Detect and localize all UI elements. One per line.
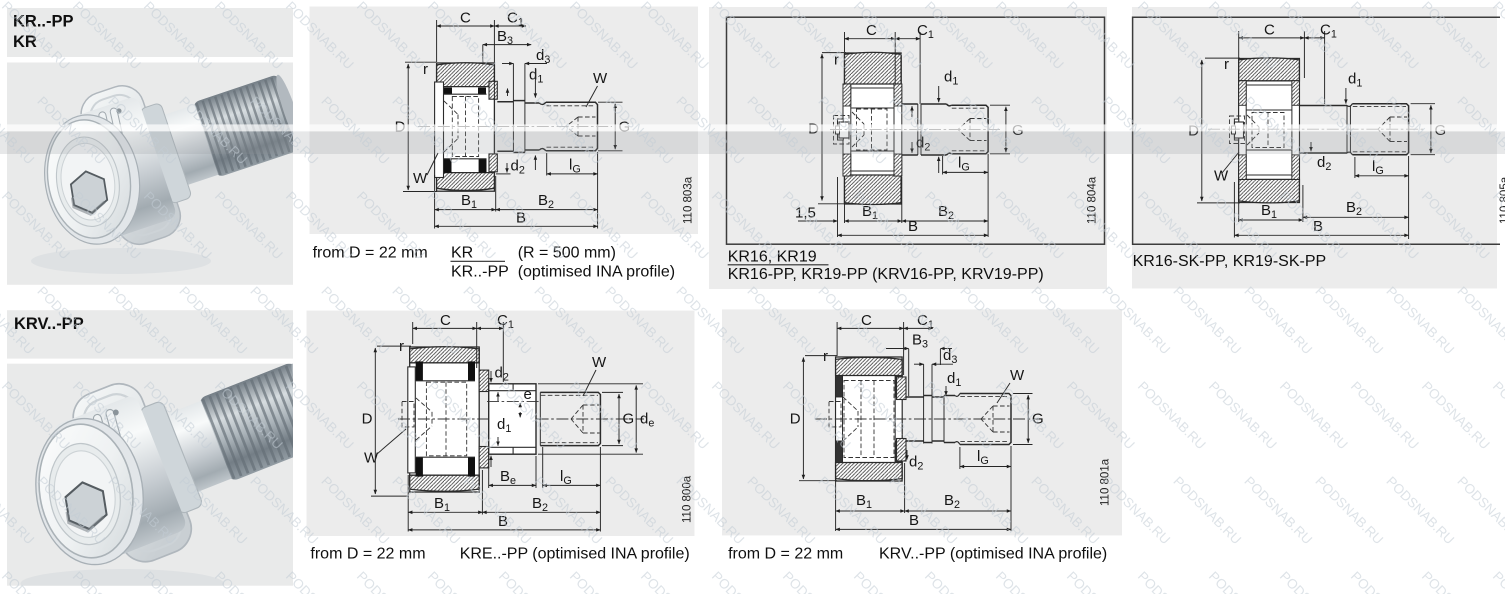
svg-text:(optimised INA profile): (optimised INA profile) [518,264,675,281]
svg-text:KR16-PP, KR19-PP (KRV16-PP, KR: KR16-PP, KR19-PP (KRV16-PP, KRV19-PP) [728,266,1044,283]
svg-text:W: W [1214,168,1229,185]
svg-text:D: D [362,411,373,428]
svg-text:W: W [593,70,608,87]
svg-text:KRE..-PP (optimised INA profil: KRE..-PP (optimised INA profile) [460,546,690,563]
svg-text:W: W [364,450,379,467]
svg-text:D: D [790,411,801,428]
svg-text:KR: KR [451,245,473,262]
svg-text:from D = 22 mm: from D = 22 mm [310,546,425,563]
svg-text:W: W [1010,367,1025,384]
svg-text:W: W [413,170,428,187]
svg-text:B: B [908,218,918,235]
svg-text:from D = 22 mm: from D = 22 mm [728,546,843,563]
svg-text:110 803a: 110 803a [683,176,695,224]
svg-text:r: r [823,348,828,365]
svg-text:C: C [1264,21,1275,38]
svg-text:KR..-PP: KR..-PP [451,264,509,281]
svg-text:KR16-SK-PP, KR19-SK-PP: KR16-SK-PP, KR19-SK-PP [1133,253,1327,270]
svg-text:KRV..-PP (optimised INA profil: KRV..-PP (optimised INA profile) [879,546,1107,563]
